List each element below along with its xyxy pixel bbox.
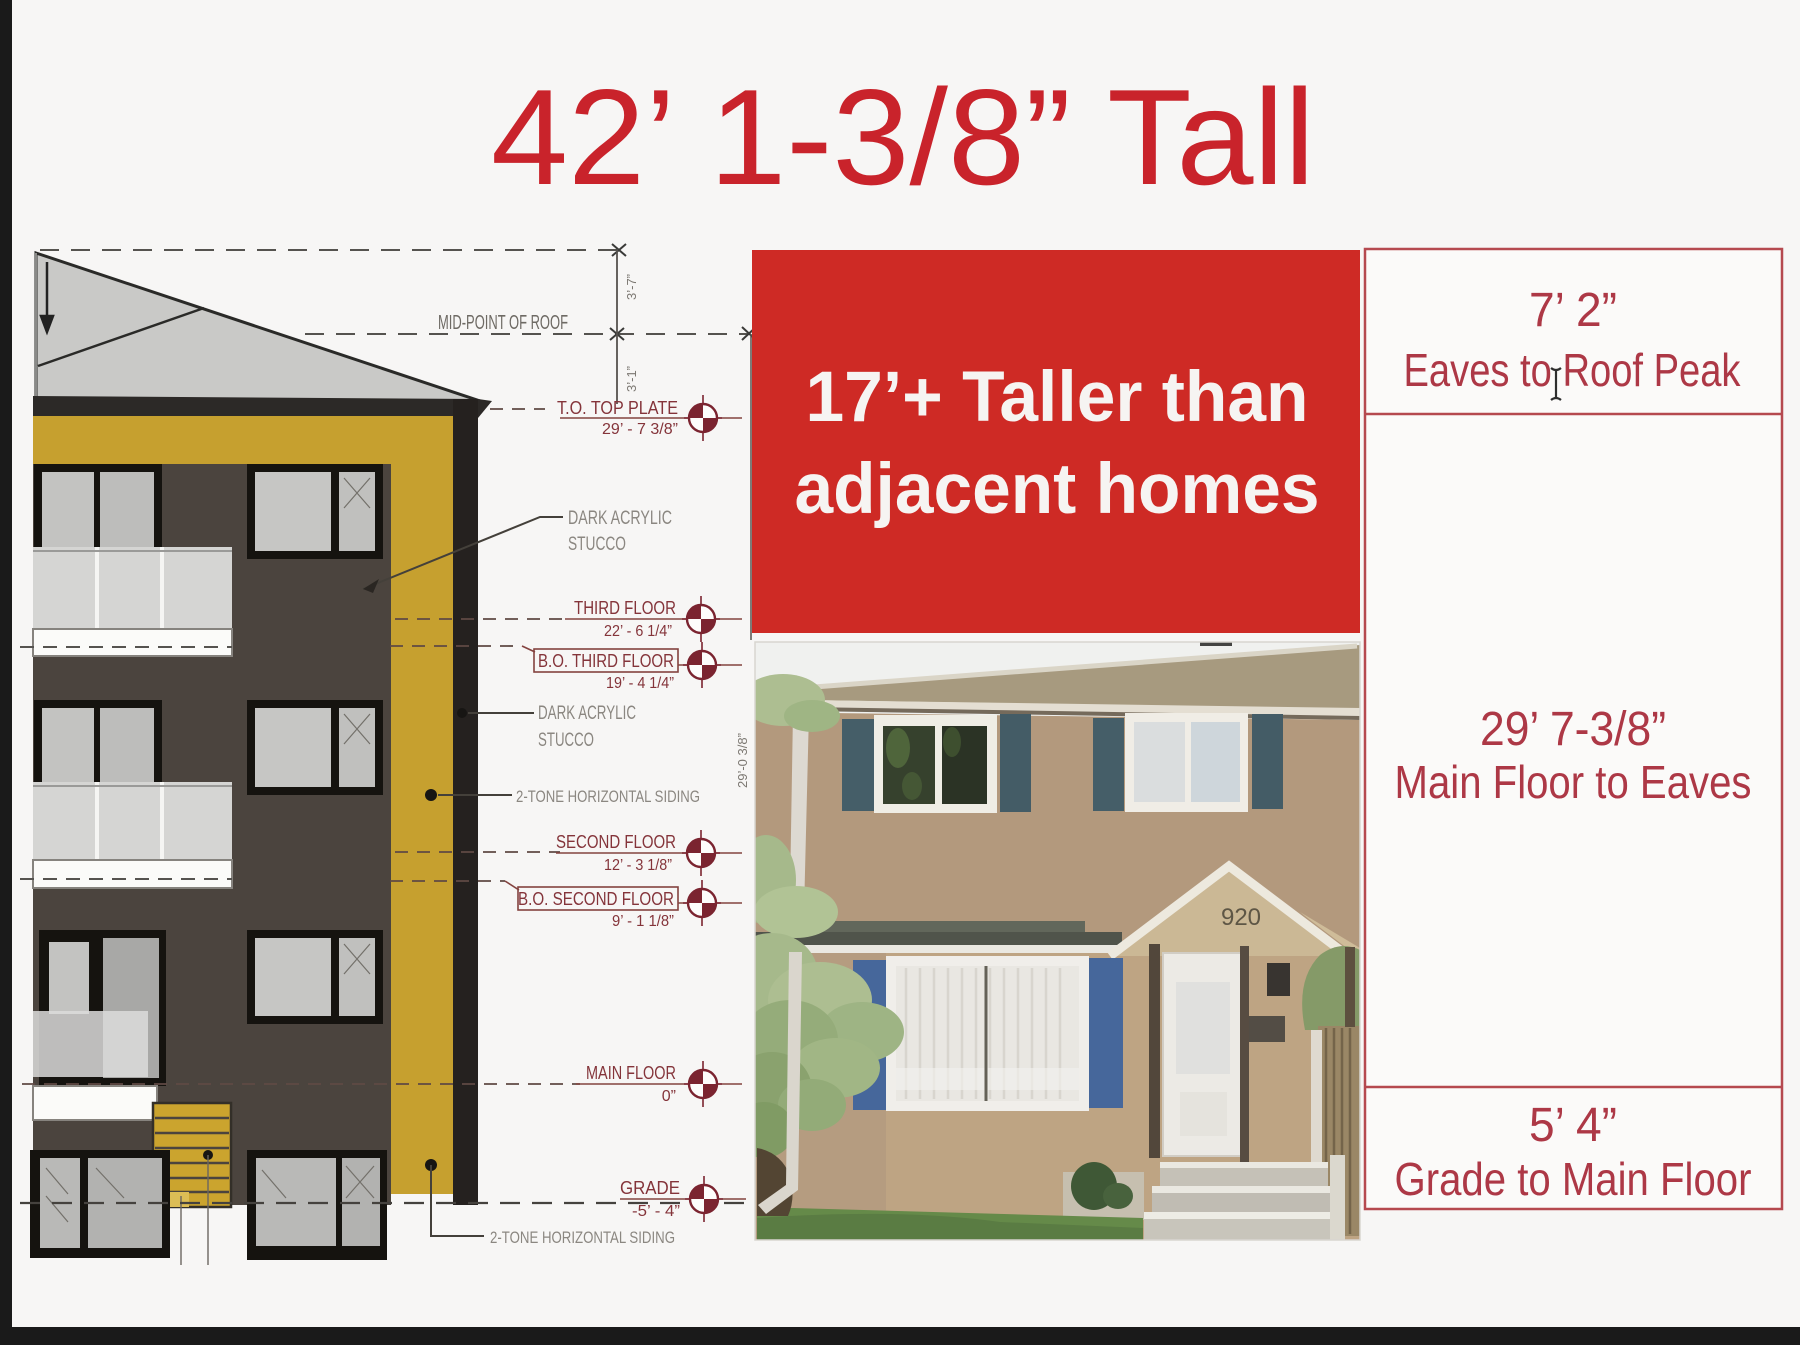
svg-text:B.O. SECOND FLOOR: B.O. SECOND FLOOR [518,889,674,909]
svg-text:Grade to Main Floor: Grade to Main Floor [1395,1153,1752,1205]
svg-text:STUCCO: STUCCO [568,534,626,555]
svg-text:GRADE: GRADE [620,1178,680,1198]
svg-text:7’ 2”: 7’ 2” [1529,284,1617,337]
svg-text:29’ - 7 3/8”: 29’ - 7 3/8” [602,421,678,438]
svg-text:DARK ACRYLIC: DARK ACRYLIC [538,703,636,724]
svg-text:MID-POINT OF ROOF: MID-POINT OF ROOF [438,312,568,334]
svg-text:22’ - 6 1/4”: 22’ - 6 1/4” [604,623,672,640]
svg-text:T.O. TOP PLATE: T.O. TOP PLATE [557,398,678,418]
svg-text:9’ - 1 1/8”: 9’ - 1 1/8” [612,913,674,930]
svg-text:THIRD FLOOR: THIRD FLOOR [574,598,676,618]
svg-text:17’+ Taller than: 17’+ Taller than [806,358,1309,437]
svg-text:3’-1”: 3’-1” [624,366,639,392]
svg-text:-5’ - 4”: -5’ - 4” [632,1203,680,1220]
svg-text:29’-0 3/8”: 29’-0 3/8” [735,733,750,788]
svg-text:SECOND FLOOR: SECOND FLOOR [556,832,676,852]
svg-text:42’ 1-3/8” Tall: 42’ 1-3/8” Tall [491,61,1315,213]
svg-text:adjacent homes: adjacent homes [795,450,1320,529]
svg-text:2-TONE HORIZONTAL SIDING: 2-TONE HORIZONTAL SIDING [516,787,700,806]
svg-text:DARK ACRYLIC: DARK ACRYLIC [568,508,672,529]
svg-text:12’ - 3 1/8”: 12’ - 3 1/8” [604,857,672,874]
svg-text:B.O. THIRD FLOOR: B.O. THIRD FLOOR [538,651,674,671]
svg-text:5’ 4”: 5’ 4” [1529,1099,1617,1152]
svg-text:2-TONE HORIZONTAL SIDING: 2-TONE HORIZONTAL SIDING [490,1228,675,1247]
svg-text:3’-7”: 3’-7” [624,274,639,300]
svg-text:0”: 0” [662,1088,676,1105]
svg-text:29’ 7-3/8”: 29’ 7-3/8” [1480,703,1666,756]
svg-text:STUCCO: STUCCO [538,730,594,751]
svg-text:Eaves to Roof Peak: Eaves to Roof Peak [1404,344,1742,396]
svg-text:19’ - 4 1/4”: 19’ - 4 1/4” [606,675,674,692]
svg-text:Main Floor to Eaves: Main Floor to Eaves [1395,756,1752,808]
svg-text:MAIN FLOOR: MAIN FLOOR [586,1063,676,1083]
